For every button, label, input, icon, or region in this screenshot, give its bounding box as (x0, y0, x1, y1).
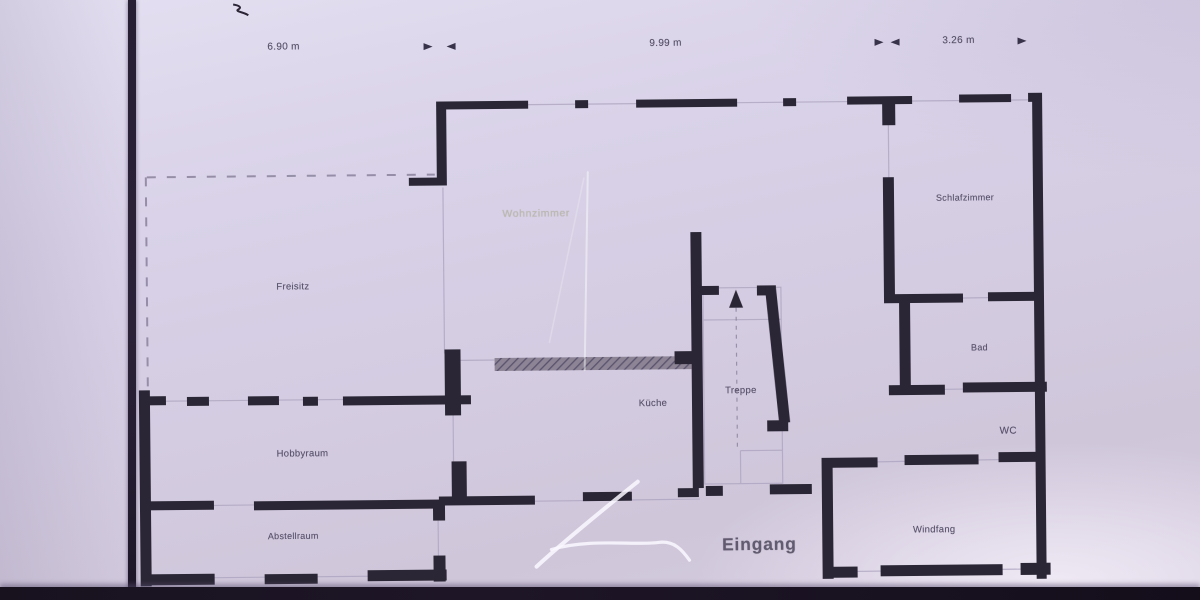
room-label-hobbyraum: Hobbyraum (277, 448, 329, 459)
photo-left-edge (128, 0, 136, 600)
paper-creases (548, 172, 590, 370)
room-label-wc: WC (1000, 426, 1017, 437)
dimension-label-middle: 9.99 m (649, 38, 681, 49)
floor-plan-photo: 6.90 m 9.99 m 3.26 m Freisitz Wohnzimmer… (0, 0, 1200, 600)
floor-plan: 6.90 m 9.99 m 3.26 m Freisitz Wohnzimmer… (0, 0, 1200, 600)
room-label-treppe: Treppe (725, 385, 757, 396)
room-label-schlafzimmer: Schlafzimmer (936, 192, 994, 203)
dimension-label-right: 3.26 m (942, 35, 974, 46)
stair-walk-line (736, 308, 737, 451)
room-label-bad: Bad (971, 342, 988, 352)
room-label-kueche: Küche (639, 398, 668, 409)
photo-bottom-edge (0, 587, 1200, 600)
room-label-wohnzimmer: Wohnzimmer (502, 207, 570, 220)
dimension-label-left: 6.90 m (267, 41, 299, 52)
edge-scribble-mark (233, 4, 248, 15)
room-label-eingang: Eingang (722, 534, 797, 556)
floor-plan-drawing (0, 0, 1200, 600)
walls (136, 93, 1051, 588)
room-label-windfang: Windfang (913, 524, 956, 535)
dimension-arrow-icons (424, 37, 1027, 50)
room-label-abstellraum: Abstellraum (268, 531, 319, 541)
room-label-freisitz: Freisitz (276, 281, 309, 292)
